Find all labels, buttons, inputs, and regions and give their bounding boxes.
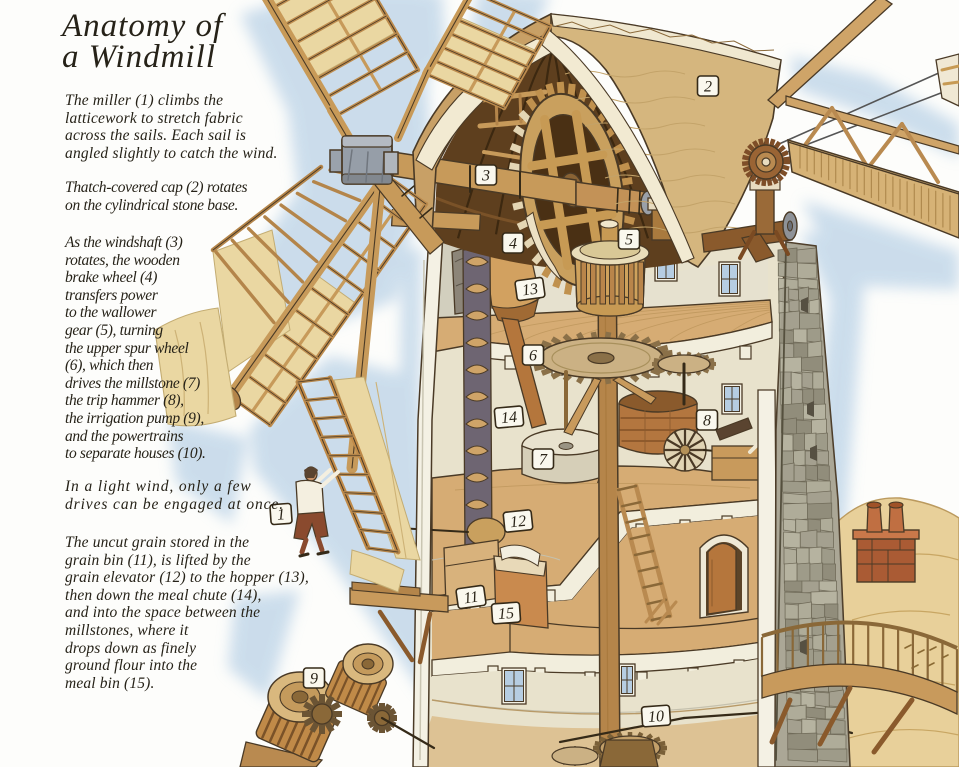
svg-text:4: 4 xyxy=(509,236,517,253)
svg-text:8: 8 xyxy=(703,413,711,430)
svg-text:12: 12 xyxy=(509,513,527,532)
svg-text:6: 6 xyxy=(529,348,537,365)
svg-text:14: 14 xyxy=(500,409,517,427)
svg-text:15: 15 xyxy=(497,605,514,623)
svg-text:2: 2 xyxy=(704,79,712,96)
svg-text:13: 13 xyxy=(521,280,539,299)
svg-text:7: 7 xyxy=(539,452,548,469)
svg-text:10: 10 xyxy=(647,708,664,726)
svg-text:3: 3 xyxy=(481,168,490,185)
svg-text:5: 5 xyxy=(625,232,633,249)
svg-text:9: 9 xyxy=(310,671,318,688)
svg-text:11: 11 xyxy=(463,589,480,608)
